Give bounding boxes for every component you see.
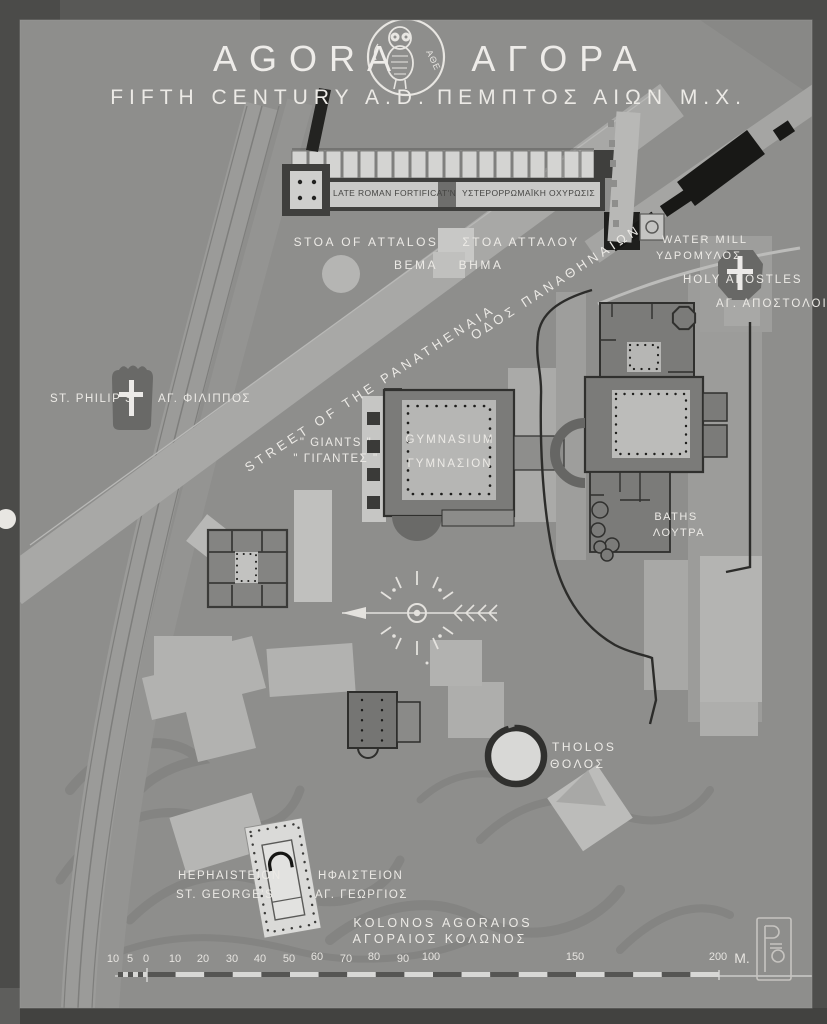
- label-baths-gr: ΛΟΥΤΡΑ: [653, 527, 705, 539]
- label-kolonos-en: KOLONOS AGORAIOS: [353, 916, 532, 930]
- scale-tick: 60: [311, 951, 323, 963]
- scale-tick: 150: [566, 951, 584, 963]
- label-baths-en: BATHS: [654, 511, 697, 523]
- label-fortification-gr: ΥΣΤΕΡΟΡΡΩΜΑΪΚΗ ΟΧΥΡΩΣΙΣ: [462, 188, 595, 198]
- agora-map-photo: ΑΘΕ: [0, 0, 827, 1024]
- map-drawing: ΑΘΕ: [0, 0, 827, 1024]
- label-hephaisteion-en2: ST. GEORGE'S: [176, 889, 274, 901]
- scale-tick: 20: [197, 953, 209, 965]
- scale-tick: 200: [709, 951, 727, 963]
- label-bema-gr: ΒΗΜΑ: [459, 258, 504, 272]
- label-stoa-en: STOA OF ATTALOS: [294, 235, 439, 249]
- subtitle-english: FIFTH CENTURY A.D.: [110, 86, 430, 110]
- scale-tick: 50: [283, 953, 295, 965]
- scale-tick: 0: [143, 953, 149, 965]
- subtitle-greek: ΠΕΜΠΤΟΣ ΑΙΩΝ Μ.Χ.: [437, 86, 747, 110]
- label-water-mill-en: WATER MILL: [662, 234, 748, 246]
- label-gymnasium-gr: ΓΥΜΝΑΣΙΟΝ: [407, 458, 492, 470]
- label-holy-apostles-en: HOLY APOSTLES: [683, 274, 803, 286]
- label-stoa-gr: ΣΤΟΑ ΑΤΤΑΛΟΥ: [462, 235, 579, 249]
- label-holy-apostles-gr: ΑΓ. ΑΠΟΣΤΟΛΟΙ: [716, 298, 827, 310]
- scale-tick: 90: [397, 953, 409, 965]
- label-giants-gr: " ΓΙΓΑΝΤΕΣ ": [293, 453, 378, 465]
- scale-tick: 30: [226, 953, 238, 965]
- scale-tick: 40: [254, 953, 266, 965]
- scale-tick: 10: [169, 953, 181, 965]
- label-water-mill-gr: ΥΔΡΟΜΥΛΟΣ: [656, 250, 742, 262]
- scale-tick: 5: [127, 953, 133, 965]
- title-greek: ΑΓΟΡΑ: [471, 38, 648, 80]
- scale-unit: M.: [734, 950, 750, 966]
- label-fortification-en: LATE ROMAN FORTIFICAT'N: [333, 188, 456, 198]
- title-english: AGORA: [213, 38, 403, 80]
- label-tholos-en: THOLOS: [552, 740, 616, 754]
- label-hephaisteion-gr1: ΗΦΑΙΣΤΕΙΟΝ: [318, 870, 403, 882]
- label-bema-en: BEMA: [394, 258, 438, 272]
- label-st-philips-gr: ΑΓ. ΦΙΛΙΠΠΟΣ: [158, 393, 251, 405]
- scale-tick: 80: [368, 951, 380, 963]
- label-tholos-gr: ΘΟΛΟΣ: [550, 757, 605, 771]
- scale-tick: 100: [422, 951, 440, 963]
- label-hephaisteion-en1: HEPHAISTEION: [178, 870, 282, 882]
- label-giants-en: " GIANTS ": [300, 437, 372, 449]
- label-kolonos-gr: ΑΓΟΡΑΙΟΣ ΚΟΛΩΝΟΣ: [353, 932, 528, 946]
- tholos-plan: [488, 724, 544, 784]
- label-hephaisteion-gr2: ΑΓ. ΓΕΩΡΓΙΟΣ: [315, 889, 408, 901]
- scale-tick: 10: [107, 953, 119, 965]
- label-gymnasium-en: GYMNASIUM: [406, 434, 495, 446]
- octagon-tower: [673, 307, 695, 329]
- label-st-philips-en: ST. PHILIP'S: [50, 393, 134, 405]
- scale-tick: 70: [340, 953, 352, 965]
- west-court-building: [208, 530, 287, 607]
- water-mill-plan: [640, 214, 664, 240]
